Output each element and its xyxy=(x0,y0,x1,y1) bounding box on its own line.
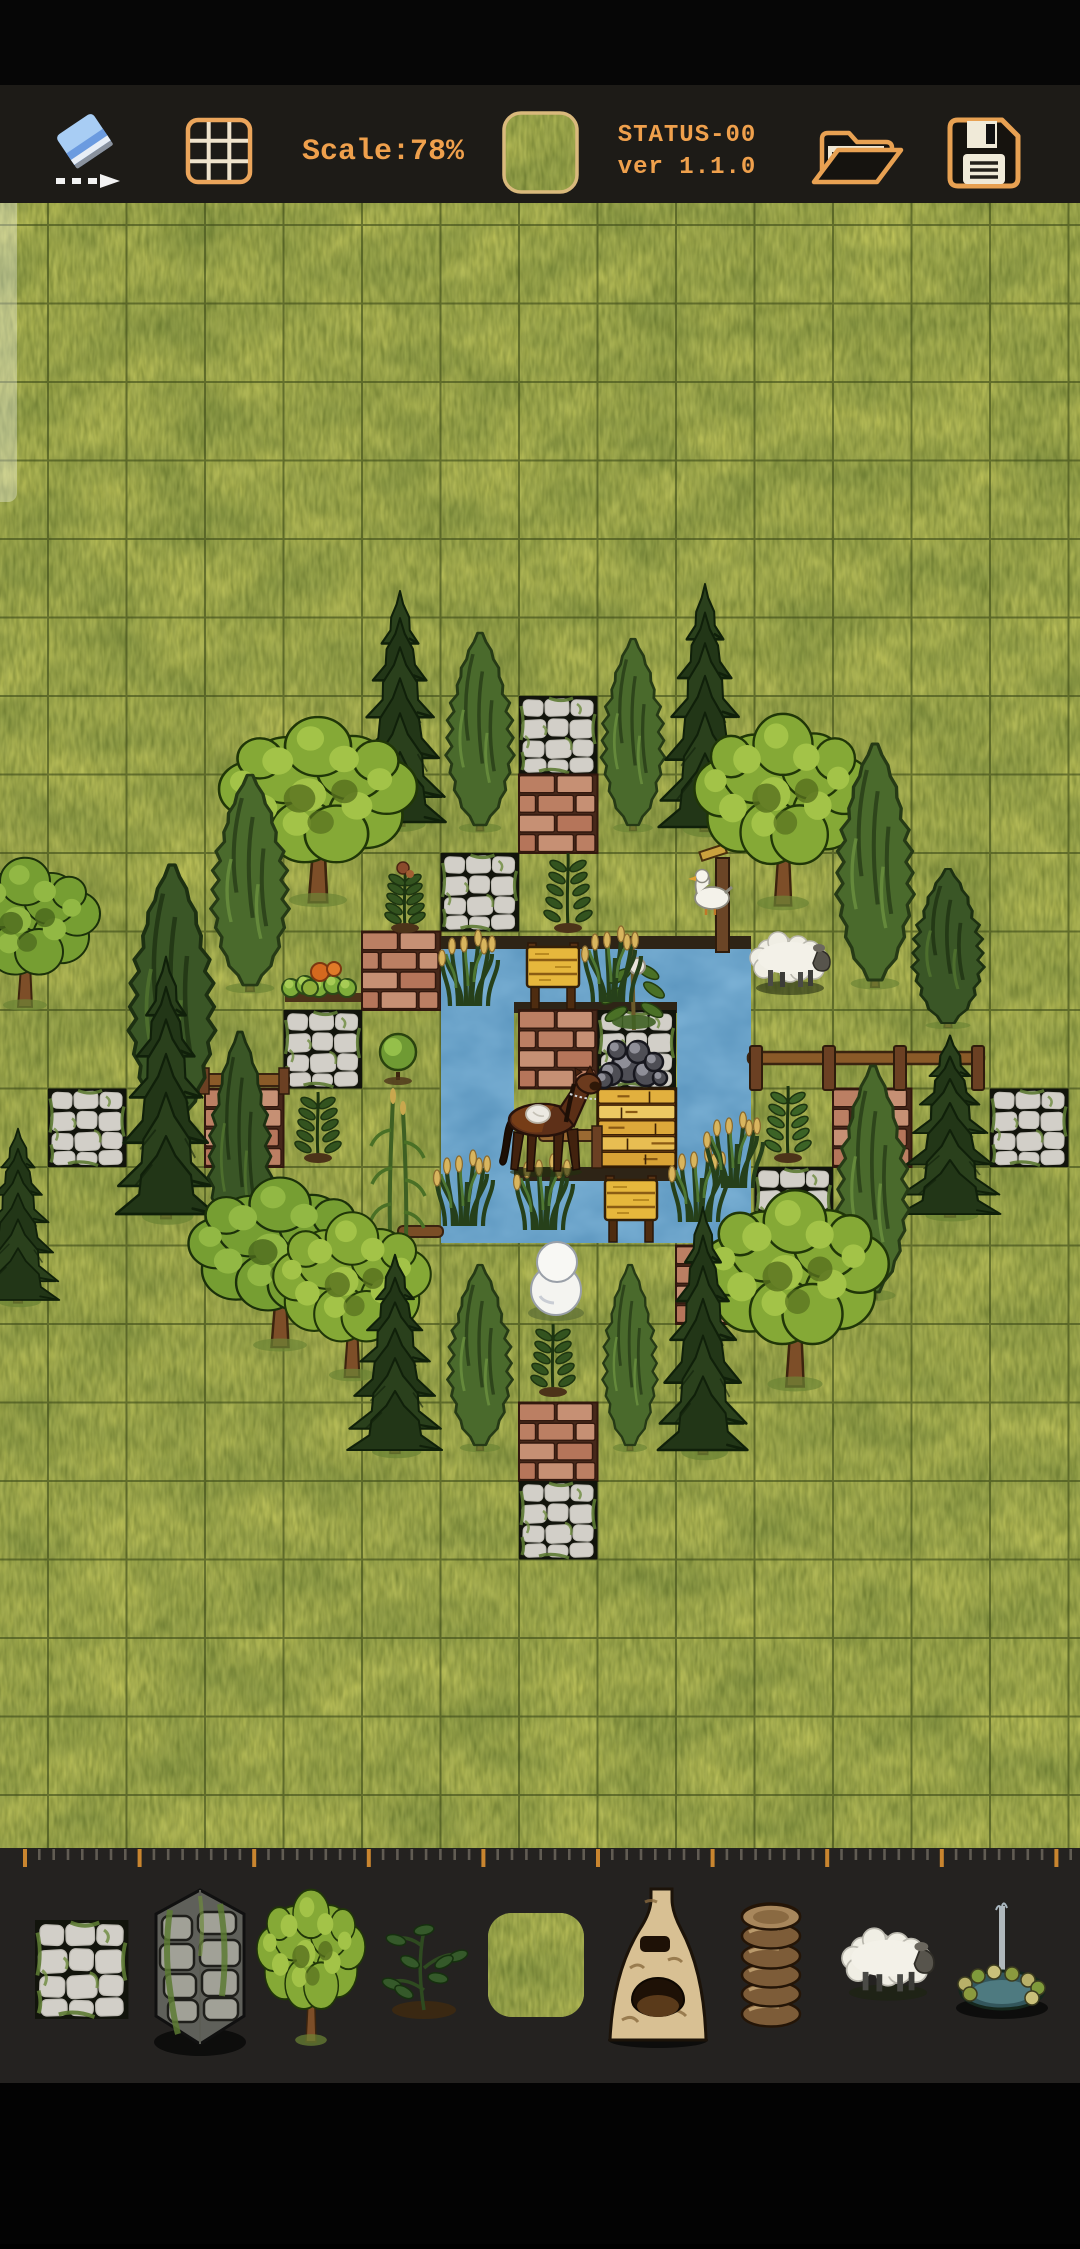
svg-text:Scale:78%: Scale:78% xyxy=(302,135,465,169)
svg-text:ver 1.1.0: ver 1.1.0 xyxy=(618,154,757,181)
svg-text:STATUS-00: STATUS-00 xyxy=(618,122,757,149)
